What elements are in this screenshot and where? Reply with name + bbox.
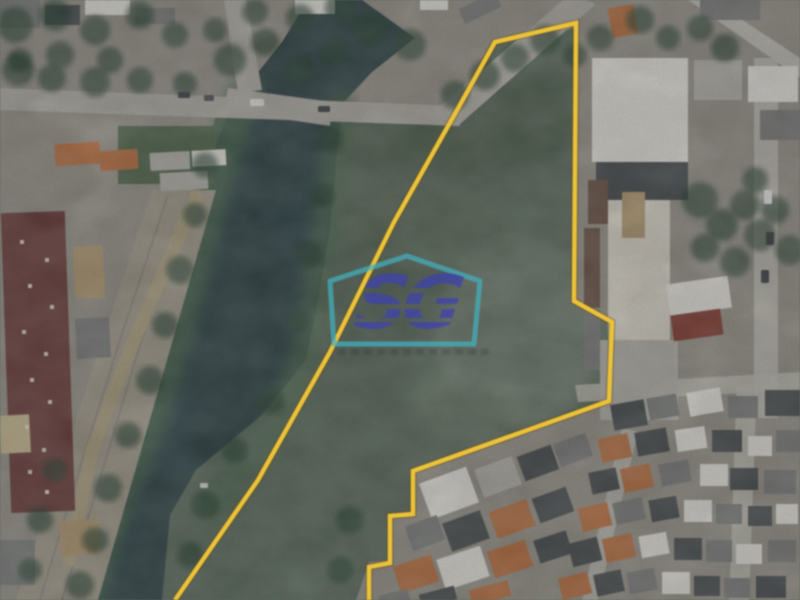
tagline-dash — [403, 349, 411, 355]
tagline-dash — [442, 349, 450, 355]
tagline-dash — [455, 349, 463, 355]
tagline-dash — [429, 349, 437, 355]
satellite-blur-layer: SG — [0, 0, 800, 600]
aerial-map-canvas: SG — [0, 0, 800, 600]
tagline-dash — [351, 349, 359, 355]
tagline-dash — [481, 349, 489, 355]
tagline-dash — [416, 349, 424, 355]
satellite-image: SG — [0, 0, 800, 600]
tagline-dash — [468, 349, 476, 355]
watermark-letters: SG — [349, 259, 466, 346]
tagline-dash — [364, 349, 372, 355]
tagline-dash — [338, 349, 346, 355]
tagline-dash — [377, 349, 385, 355]
tagline-dash — [390, 349, 398, 355]
